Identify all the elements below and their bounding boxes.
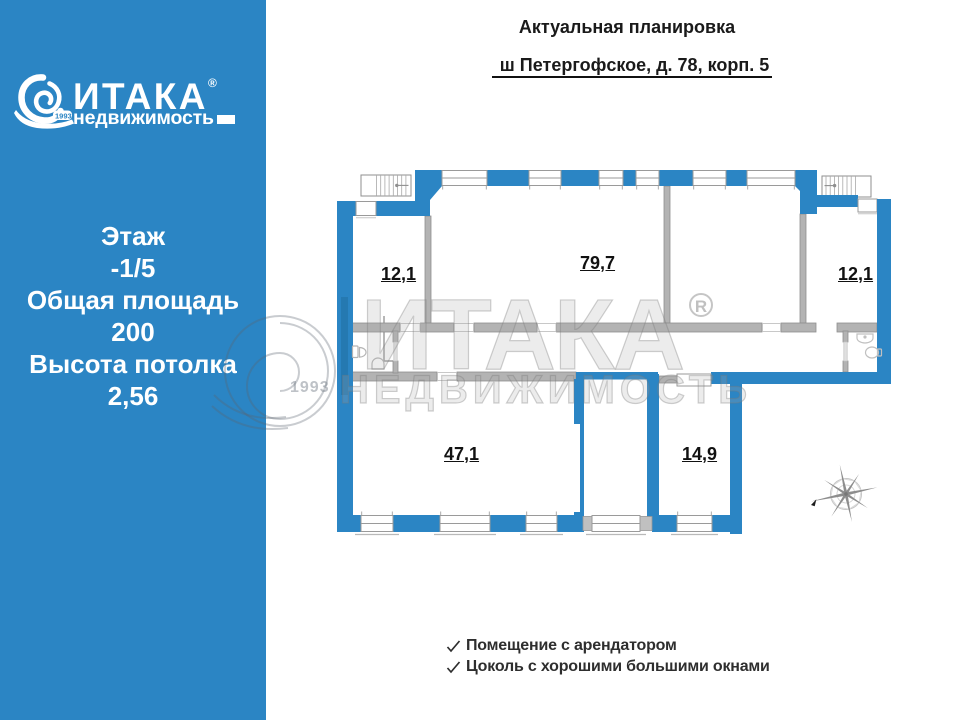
svg-text:недвижимость: недвижимость: [73, 107, 214, 129]
svg-text:1993: 1993: [290, 379, 330, 396]
svg-text:R: R: [695, 297, 707, 316]
svg-text:НЕДВИЖИМОСТЬ: НЕДВИЖИМОСТЬ: [340, 368, 752, 412]
svg-text:®: ®: [208, 76, 217, 90]
svg-text:1993: 1993: [55, 111, 72, 120]
